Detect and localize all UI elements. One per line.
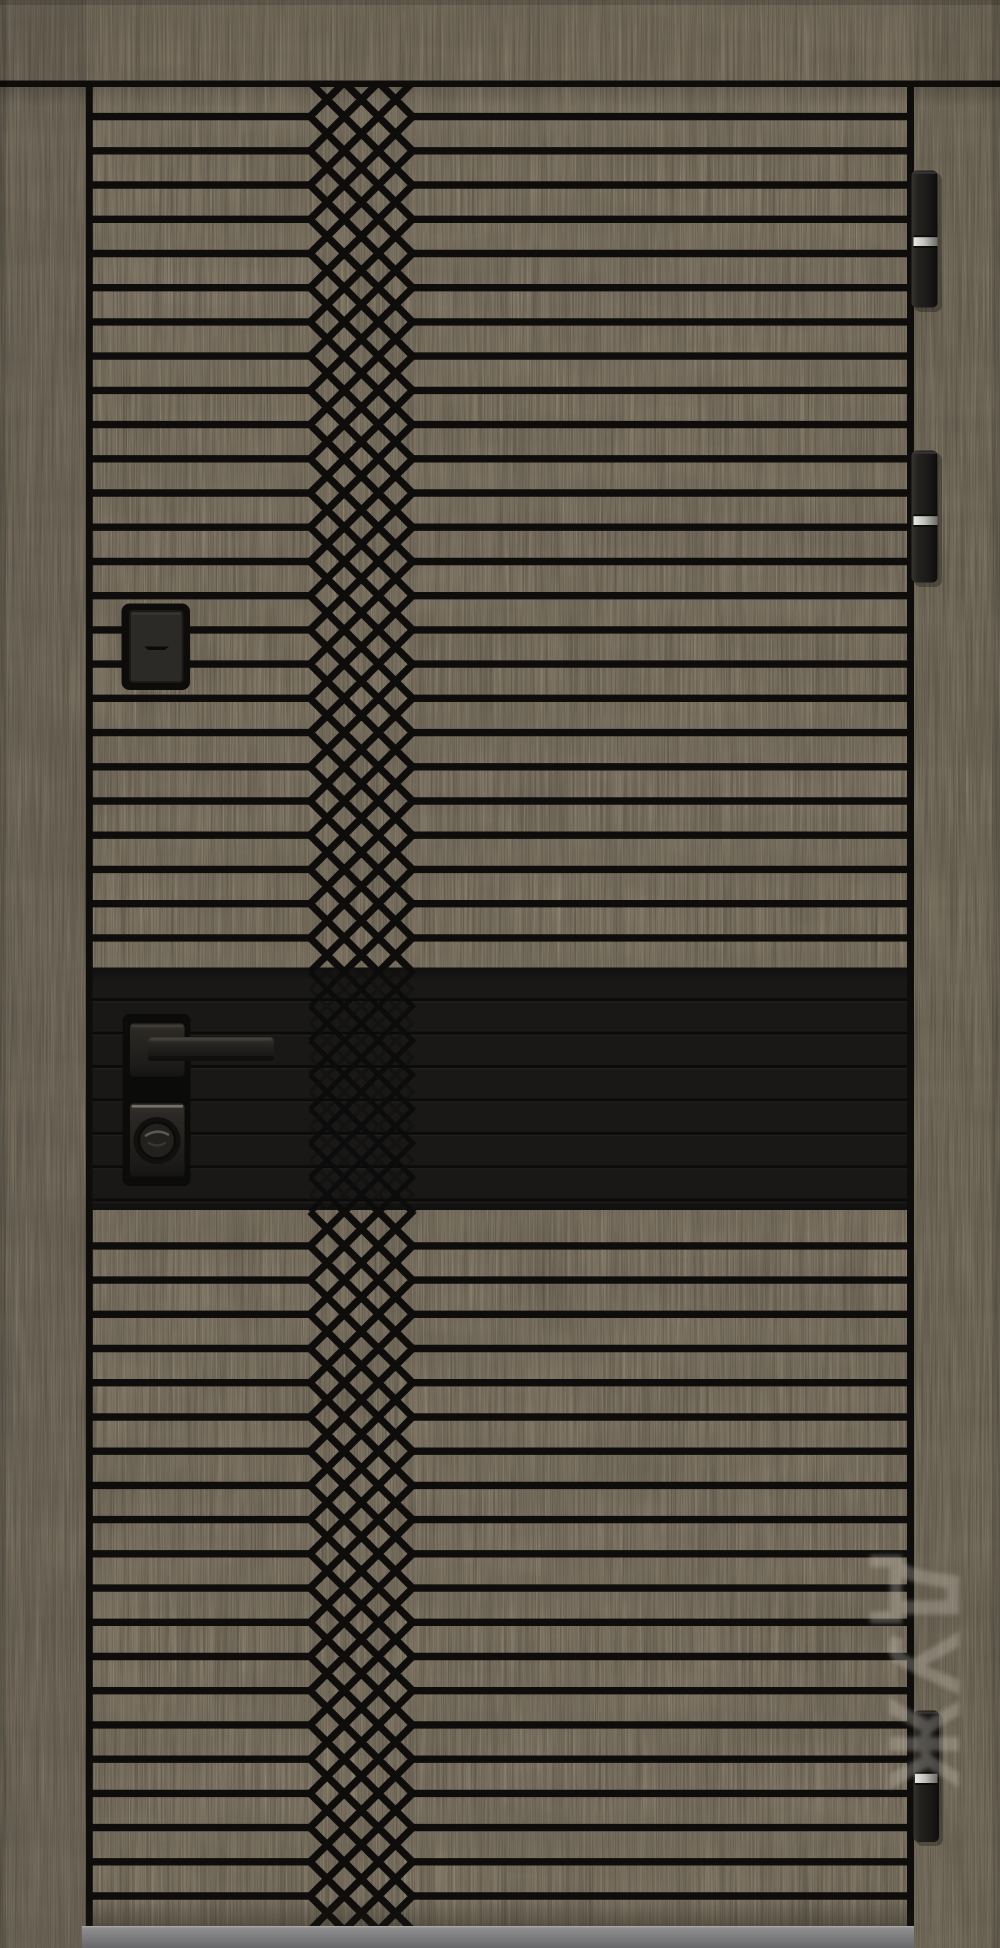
svg-text:ДУЖ: ДУЖ: [868, 1554, 980, 1794]
